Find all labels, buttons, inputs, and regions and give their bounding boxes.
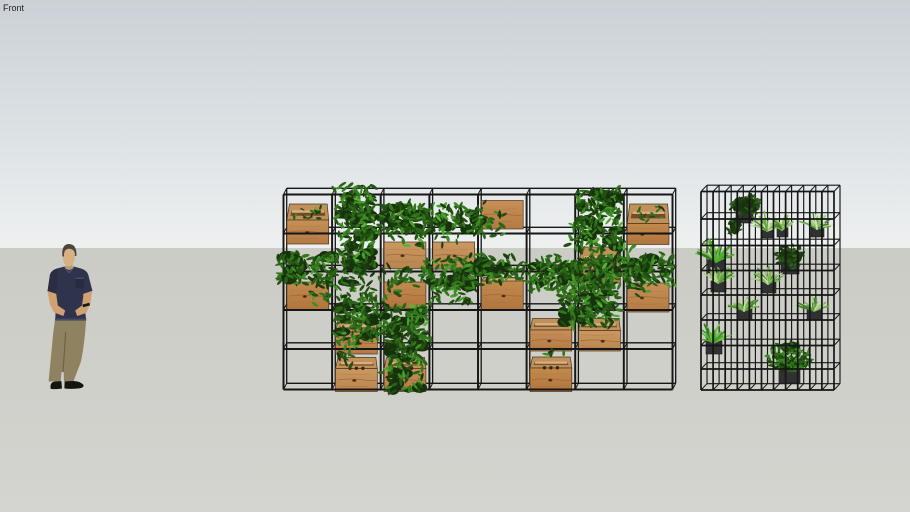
svg-text:Front: Front xyxy=(3,3,25,13)
